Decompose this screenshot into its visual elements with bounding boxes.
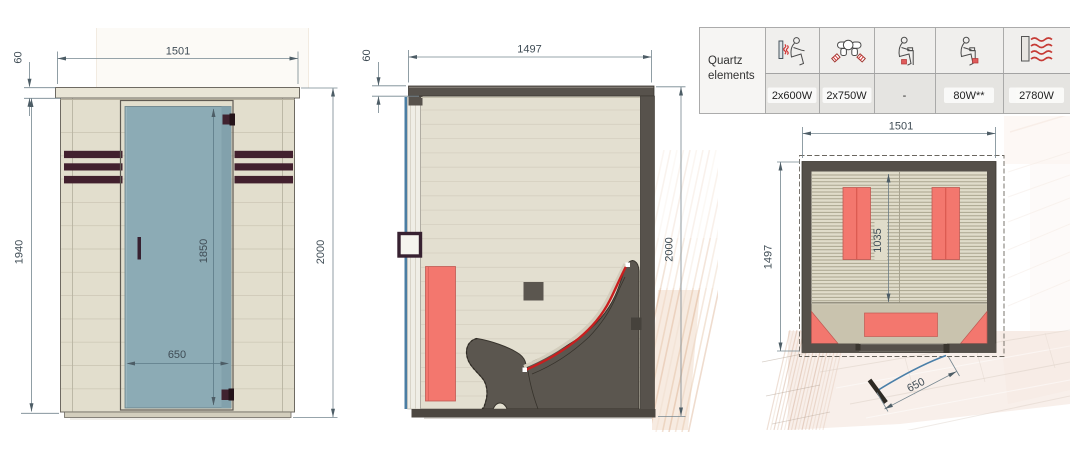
svg-text:-: - [903, 90, 907, 102]
svg-text:1501: 1501 [889, 121, 913, 133]
svg-text:1940: 1940 [14, 240, 26, 264]
svg-text:1850: 1850 [198, 239, 210, 263]
svg-text:650: 650 [168, 349, 186, 361]
svg-text:1497: 1497 [517, 44, 541, 56]
svg-text:1501: 1501 [166, 46, 190, 58]
svg-text:2000: 2000 [315, 240, 327, 264]
svg-text:Quartz: Quartz [708, 55, 743, 67]
svg-text:elements: elements [708, 70, 755, 82]
svg-text:2x750W: 2x750W [826, 90, 867, 102]
svg-text:2000: 2000 [664, 237, 676, 261]
svg-text:2x600W: 2x600W [772, 90, 813, 102]
svg-text:60: 60 [13, 51, 25, 63]
svg-text:80W**: 80W** [953, 90, 985, 102]
svg-text:1035: 1035 [872, 228, 884, 252]
svg-text:1497: 1497 [763, 245, 775, 269]
svg-text:2780W: 2780W [1019, 90, 1054, 102]
svg-text:60: 60 [361, 49, 373, 61]
